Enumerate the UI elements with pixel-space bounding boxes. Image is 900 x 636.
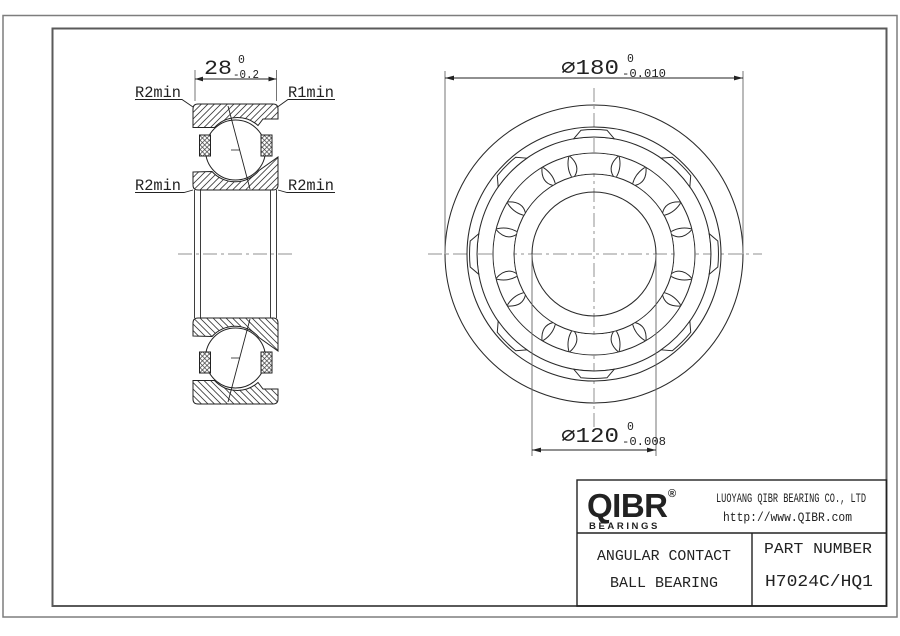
arrow-right-icon xyxy=(734,76,743,81)
drawing-sheet: 28 0 -0.2 R2min R1min R2min R2min xyxy=(0,0,900,636)
od-dim-tol-lower: -0.010 xyxy=(622,68,666,81)
arrow-left-icon xyxy=(532,448,541,453)
label-r2min-top-left: R2min xyxy=(135,84,181,102)
engineering-drawing: 28 0 -0.2 R2min R1min R2min R2min xyxy=(0,0,900,636)
section-top-half xyxy=(193,104,278,190)
width-dim-tol-upper: 0 xyxy=(238,54,245,67)
registered-trademark-icon: ® xyxy=(668,488,676,500)
section-view: 28 0 -0.2 R2min R1min R2min R2min xyxy=(135,54,335,404)
arrow-right-icon xyxy=(269,77,277,82)
company-logo: QIBR ® BEARINGS xyxy=(587,487,676,532)
title-block: QIBR ® BEARINGS LUOYANG QIBR BEARING CO.… xyxy=(577,480,887,606)
width-dim-value: 28 xyxy=(204,58,232,81)
bore-dim-value: ⌀120 xyxy=(561,426,619,449)
outer-border xyxy=(3,16,897,618)
logo-subtext: BEARINGS xyxy=(589,521,660,532)
part-number-label: PART NUMBER xyxy=(764,542,872,558)
arrow-left-icon xyxy=(445,76,454,81)
arrow-left-icon xyxy=(195,77,203,82)
front-view: ⌀180 0 -0.010 ⌀120 0 -0.008 xyxy=(428,53,762,456)
width-dim-tol-lower: -0.2 xyxy=(233,69,259,82)
label-r2min-bottom-right: R2min xyxy=(288,177,334,195)
product-type-line1: ANGULAR CONTACT xyxy=(597,549,731,565)
section-bottom-half xyxy=(193,318,278,404)
cage-balls xyxy=(478,138,711,371)
company-website: http://www.QIBR.com xyxy=(723,510,852,525)
width-dimension: 28 0 -0.2 xyxy=(195,54,277,101)
od-dim-value: ⌀180 xyxy=(561,58,619,81)
bore-dim-tol-lower: -0.008 xyxy=(622,436,666,449)
part-number-value: H7024C/HQ1 xyxy=(765,572,873,591)
label-r1min-top-right: R1min xyxy=(288,84,334,102)
company-name: LUOYANG QIBR BEARING CO., LTD xyxy=(716,491,866,506)
od-dim-tol-upper: 0 xyxy=(627,53,634,66)
bore-dim-tol-upper: 0 xyxy=(627,421,634,434)
label-r2min-bottom-left: R2min xyxy=(135,177,181,195)
product-type-line2: BALL BEARING xyxy=(610,576,718,592)
logo-text: QIBR xyxy=(587,487,668,524)
